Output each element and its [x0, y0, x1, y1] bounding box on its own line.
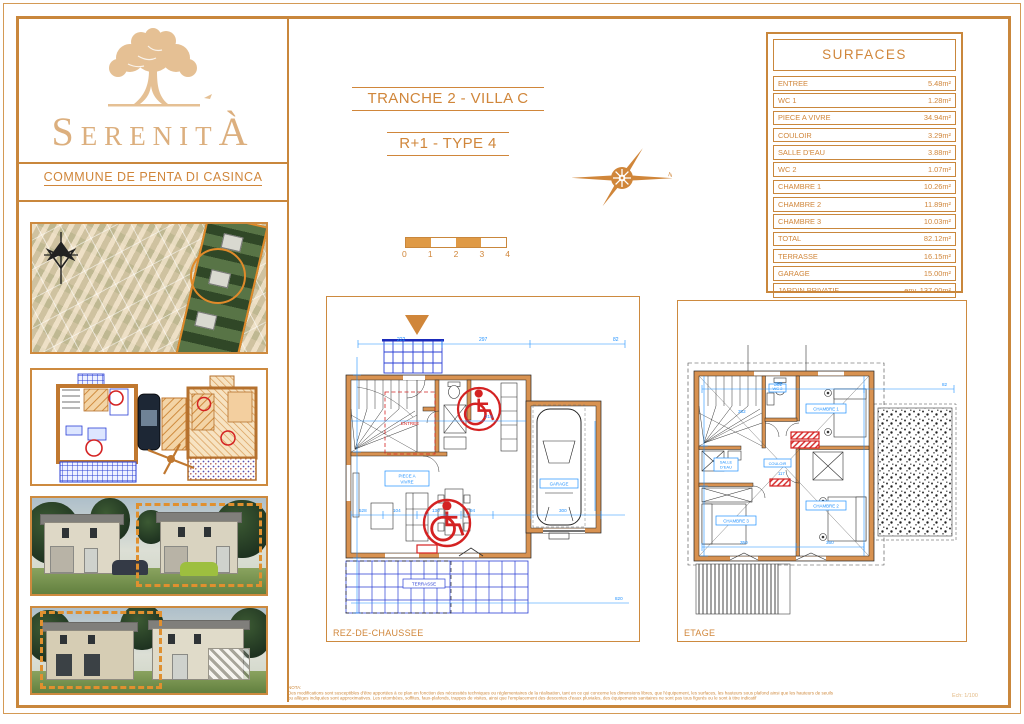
surfaces-title: SURFACES [773, 39, 956, 71]
surfaces-row: ENTREE 5.48m² [773, 76, 956, 91]
villa-highlight-circle [190, 248, 246, 304]
etage-plan-panel: CHAMBRE 1 CHAMBRE 2 CHAMBRE 3 SALLE D'EA… [677, 300, 967, 642]
scale-tick-label: 1 [428, 249, 433, 259]
surface-room-label: JARDIN PRIVATIF [778, 286, 839, 295]
svg-text:S: S [572, 177, 573, 184]
surface-area-value: 1.07m² [928, 165, 951, 174]
scale-tick-label: 0 [402, 249, 407, 259]
render-rear-panel [30, 606, 268, 695]
pergola-below [696, 564, 790, 614]
plan-sheet: SERENITÀ COMMUNE DE PENTA DI CASINCA [0, 0, 1024, 724]
scale-bar-cells [405, 237, 507, 248]
sidebar-rule-2 [16, 200, 287, 202]
logo-letter-a: À [219, 109, 255, 154]
svg-text:360: 360 [826, 540, 834, 545]
svg-text:352: 352 [738, 409, 746, 414]
surface-area-value: 10.26m² [924, 182, 951, 191]
bedroom3-label: CHAMBRE 3 [723, 519, 749, 524]
surface-area-value: 16.15m² [924, 252, 951, 261]
surface-area-value: 3.29m² [928, 131, 951, 140]
mini-driveway [162, 398, 186, 450]
surface-room-label: TOTAL [778, 234, 801, 243]
logo-wordmark: SERENITÀ [20, 117, 286, 151]
svg-text:215: 215 [485, 414, 493, 419]
svg-text:297: 297 [479, 337, 488, 343]
surfaces-rows: ENTREE 5.48m² WC 1 1.28m² PIECE A VIVRE … [773, 76, 956, 298]
rdc-caption: REZ-DE-CHAUSSEE [333, 628, 424, 638]
surfaces-row: JARDIN PRIVATIF env. 137.00m² [773, 283, 956, 298]
surface-area-value: 5.48m² [928, 79, 951, 88]
etage-plan-drawing: CHAMBRE 1 CHAMBRE 2 CHAMBRE 3 SALLE D'EA… [678, 301, 963, 623]
surfaces-row: GARAGE 15.00m² [773, 266, 956, 281]
surfaces-row: SALLE D'EAU 3.88m² [773, 145, 956, 160]
villa-c-highlight [40, 611, 162, 689]
logo: SERENITÀ [20, 26, 286, 158]
surface-area-value: 1.28m² [928, 96, 951, 105]
bedroom1-label: CHAMBRE 1 [813, 407, 839, 412]
surface-room-label: GARAGE [778, 269, 810, 278]
car-symbol [537, 409, 581, 539]
scale-tick-label: 4 [505, 249, 510, 259]
surfaces-row: WC 2 1.07m² [773, 162, 956, 177]
living-label-2: VIVRE [400, 480, 413, 485]
nota-block: NOTA: Des modifications sont susceptible… [288, 685, 933, 701]
surface-area-value: env. 137.00m² [904, 286, 951, 295]
north-triangle-icon [405, 315, 429, 335]
scale-bar: 01234 [405, 237, 509, 259]
surface-room-label: CHAMBRE 3 [778, 217, 821, 226]
surface-room-label: CHAMBRE 2 [778, 200, 821, 209]
bathroom-label-2: D'EAU [720, 465, 732, 470]
terrace-label: TERRASSE [412, 582, 436, 587]
surface-room-label: ENTREE [778, 79, 808, 88]
svg-text:222: 222 [397, 337, 406, 343]
sheet-subtitle: R+1 - TYPE 4 [387, 132, 509, 156]
svg-text:302: 302 [774, 382, 783, 388]
surfaces-row: CHAMBRE 2 11.89m² [773, 197, 956, 212]
svg-text:94: 94 [470, 508, 476, 513]
pergola [208, 648, 250, 680]
villa-c-highlight [136, 503, 262, 587]
scale-reference: Ech: 1/100 [952, 692, 978, 698]
sheet-title: TRANCHE 2 - VILLA C [352, 87, 544, 111]
surface-area-value: 34.94m² [924, 113, 951, 122]
mini-plan-drawing [32, 370, 266, 484]
site-aerial-panel [30, 222, 268, 354]
site-north-arrow-icon [38, 230, 84, 286]
surface-room-label: CHAMBRE 1 [778, 182, 821, 191]
svg-text:300: 300 [559, 508, 567, 513]
compass-rose-icon: N S [572, 139, 672, 215]
surface-area-value: 82.12m² [924, 234, 951, 243]
svg-text:350: 350 [740, 540, 748, 545]
sidebar-rule-1 [16, 162, 287, 164]
svg-text:820: 820 [615, 596, 623, 601]
svg-text:82: 82 [942, 382, 948, 387]
entry-door [84, 548, 98, 573]
tree-icon [78, 26, 228, 112]
scale-bar-ticks: 01234 [402, 249, 510, 259]
rdc-plan-panel: ENTREE [326, 296, 640, 642]
surface-area-value: 10.03m² [924, 217, 951, 226]
surfaces-row: WC 1 1.28m² [773, 93, 956, 108]
surface-area-value: 11.89m² [924, 200, 951, 209]
scale-tick-label: 3 [479, 249, 484, 259]
villa-footprint [194, 311, 217, 330]
render-front-panel [30, 496, 268, 596]
mini-car [138, 394, 160, 450]
logo-letter-s: S [51, 109, 80, 154]
surface-room-label: SALLE D'EAU [778, 148, 825, 157]
surfaces-row: COULOIR 3.29m² [773, 128, 956, 143]
mini-right-villa [188, 376, 256, 480]
surface-room-label: PIECE A VIVRE [778, 113, 831, 122]
garage-label: GARAGE [550, 482, 569, 487]
logo-letters-mid: ERENIT [81, 121, 219, 151]
svg-text:130: 130 [432, 508, 440, 513]
surfaces-row: TERRASSE 16.15m² [773, 249, 956, 264]
etage-caption: ETAGE [684, 628, 715, 638]
mini-plan-panel [30, 368, 268, 486]
surface-room-label: COULOIR [778, 131, 812, 140]
entry-label: ENTREE [401, 421, 419, 426]
sidebar-divider [287, 16, 289, 702]
surface-area-value: 3.88m² [928, 148, 951, 157]
terrace: TERRASSE [346, 561, 528, 613]
surfaces-row: CHAMBRE 1 10.26m² [773, 180, 956, 195]
surface-room-label: WC 2 [778, 165, 796, 174]
surface-area-value: 15.00m² [924, 269, 951, 278]
bedroom2-label: CHAMBRE 2 [813, 504, 839, 509]
gravel-roof-area [874, 404, 956, 540]
hall-label: COULOIR [769, 461, 787, 466]
garage-door [50, 546, 74, 573]
leader-lines [748, 345, 806, 375]
svg-text:N: N [667, 172, 672, 179]
nota-line2: ou allèges indiquées sont approximatives… [288, 696, 933, 701]
svg-text:117: 117 [778, 471, 785, 476]
living-label-1: PIECE A [398, 474, 415, 479]
surfaces-row: PIECE A VIVRE 34.94m² [773, 111, 956, 126]
svg-text:104: 104 [393, 508, 401, 513]
svg-text:528: 528 [359, 508, 367, 513]
surfaces-row: CHAMBRE 3 10.03m² [773, 214, 956, 229]
surfaces-row: TOTAL 82.12m² [773, 232, 956, 247]
rdc-plan-drawing: ENTREE [327, 297, 636, 623]
mini-left-villa [58, 374, 136, 482]
surfaces-table: SURFACES ENTREE 5.48m² WC 1 1.28m² PIECE… [766, 32, 963, 293]
surface-room-label: TERRASSE [778, 252, 818, 261]
commune-title: COMMUNE DE PENTA DI CASINCA [20, 170, 286, 184]
scale-tick-label: 2 [454, 249, 459, 259]
svg-text:82: 82 [613, 337, 619, 343]
commune-text: COMMUNE DE PENTA DI CASINCA [44, 170, 263, 186]
surface-room-label: WC 1 [778, 96, 796, 105]
patio-door [172, 654, 188, 680]
